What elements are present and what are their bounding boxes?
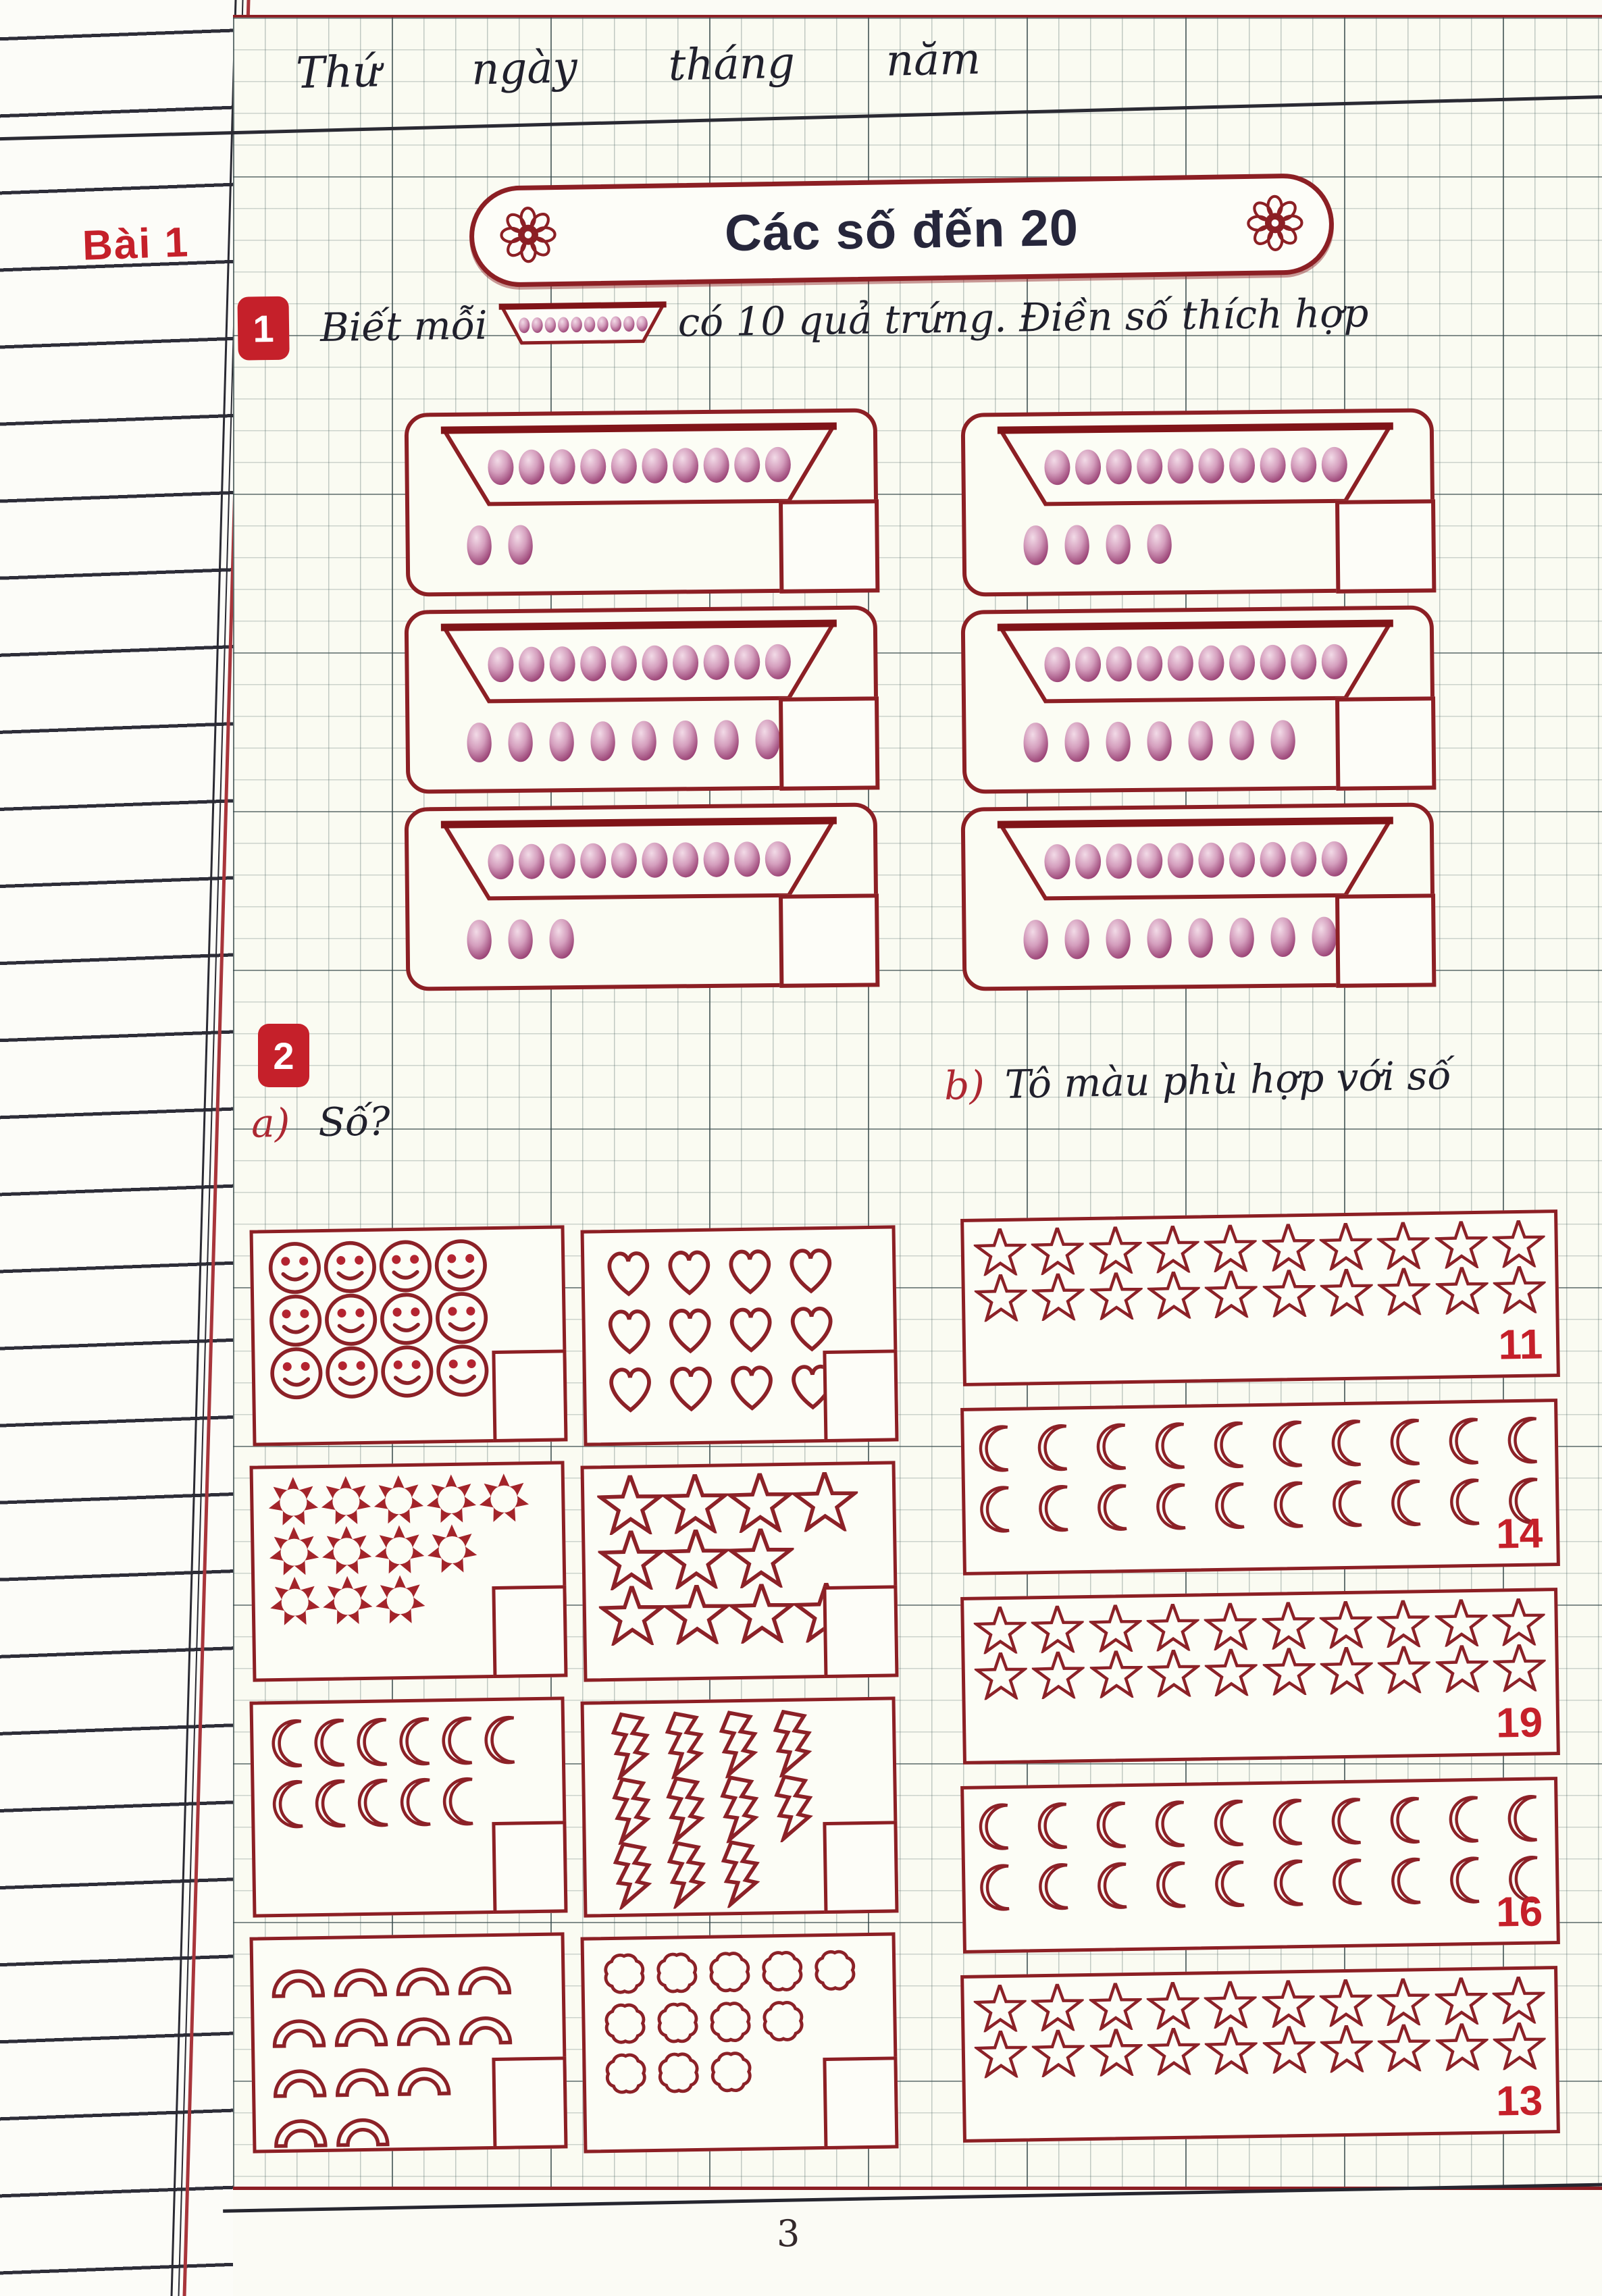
- date-word-ngay: ngày: [471, 43, 577, 95]
- star-shape[interactable]: [973, 1228, 1027, 1276]
- sun-shape: [424, 1472, 479, 1527]
- shape-row: [598, 1992, 894, 2051]
- star-shape[interactable]: [1435, 1221, 1488, 1269]
- exercise2-badge: 2: [258, 1024, 309, 1087]
- moon-shape[interactable]: [1033, 1477, 1077, 1540]
- cloud-shape: [808, 1943, 862, 1998]
- lightning-shape: [652, 1775, 708, 1844]
- egg-shape: [503, 917, 538, 962]
- lesson-tab: Bài 1: [82, 218, 190, 269]
- star-shape[interactable]: [1435, 1977, 1488, 2025]
- part-a-letter: a): [251, 1100, 290, 1147]
- star-shape[interactable]: [1032, 2029, 1085, 2077]
- loose-eggs: [1018, 521, 1177, 567]
- workbook-page: Thứ ngày tháng năm Bài 1 Các số đ: [0, 0, 1602, 2296]
- shape-row: [973, 1409, 1545, 1480]
- date-word-thang: tháng: [668, 38, 796, 91]
- moon-shape[interactable]: [1327, 1850, 1370, 1913]
- part-a-title: Số?: [318, 1098, 390, 1145]
- sun-shape: [267, 1575, 322, 1629]
- target-number: 14: [1496, 1509, 1543, 1558]
- star-shape[interactable]: [1262, 1648, 1316, 1696]
- lightning-shape: [759, 1708, 816, 1777]
- star-shape: [598, 1530, 665, 1591]
- egg-shape: [1142, 521, 1177, 567]
- rainbow-shape: [267, 1996, 331, 2051]
- star-shape[interactable]: [1262, 2026, 1316, 2074]
- moon-shape: [394, 1708, 438, 1774]
- egg-count-box: [961, 802, 1436, 991]
- rainbow-shape: [330, 2095, 394, 2149]
- target-number: 13: [1496, 2077, 1543, 2125]
- rainbow-shape: [390, 1944, 455, 1999]
- page-title: Các số đến 20: [559, 196, 1244, 265]
- answer-box[interactable]: [1335, 893, 1436, 988]
- moon-shape[interactable]: [975, 1856, 1018, 1919]
- egg-tray: [440, 815, 839, 904]
- moon-shape[interactable]: [1091, 1794, 1134, 1856]
- flower-icon: [1243, 191, 1307, 257]
- shape-row: [598, 1471, 893, 1535]
- shape-row: [974, 2022, 1546, 2078]
- cloud-shape: [702, 1945, 757, 2000]
- shape-row: [267, 1942, 562, 2001]
- moon-shape[interactable]: [1092, 1854, 1135, 1917]
- answer-box[interactable]: [823, 1349, 898, 1442]
- star-shape[interactable]: [974, 2030, 1027, 2078]
- cloud-shape: [651, 2045, 706, 2100]
- count-boxes-grid: [251, 1228, 898, 2151]
- target-number: 16: [1496, 1887, 1543, 1936]
- heart-shape: [658, 1296, 721, 1359]
- moon-shape[interactable]: [973, 1417, 1016, 1480]
- smiley-shape: [266, 1239, 324, 1297]
- moon-shape: [309, 1771, 354, 1836]
- moon-shape[interactable]: [1386, 1471, 1429, 1534]
- lightning-shape: [705, 1708, 762, 1778]
- answer-box[interactable]: [823, 2056, 898, 2149]
- star-shape[interactable]: [1319, 1979, 1372, 2027]
- moon-shape[interactable]: [1443, 1788, 1487, 1851]
- answer-box[interactable]: [1335, 499, 1436, 594]
- star-shape[interactable]: [1320, 2025, 1373, 2072]
- egg-shape: [1018, 720, 1053, 765]
- moon-shape[interactable]: [1149, 1793, 1193, 1856]
- moon-shape[interactable]: [1326, 1790, 1369, 1852]
- star-shape: [792, 1471, 858, 1532]
- moon-shape[interactable]: [1386, 1850, 1429, 1912]
- moon-shape: [437, 1769, 482, 1834]
- star-shape[interactable]: [1435, 2023, 1489, 2071]
- star-shape: [598, 1586, 665, 1646]
- rainbow-shape: [392, 2044, 456, 2099]
- moon-shape[interactable]: [975, 1478, 1018, 1541]
- star-shape[interactable]: [1435, 1599, 1488, 1647]
- moon-shape[interactable]: [1033, 1855, 1077, 1918]
- star-shape[interactable]: [1089, 1983, 1142, 2031]
- heart-shape: [658, 1238, 721, 1301]
- answer-box[interactable]: [492, 1349, 567, 1442]
- star-shape[interactable]: [1147, 2027, 1200, 2075]
- heart-shape: [779, 1236, 842, 1299]
- loose-eggs: [462, 523, 538, 568]
- target-number: 19: [1496, 1698, 1543, 1747]
- sun-shape: [477, 1471, 532, 1526]
- egg-shape: [668, 718, 702, 763]
- moon-shape[interactable]: [1445, 1471, 1488, 1534]
- egg-shape: [1224, 915, 1259, 960]
- egg-count-box: [405, 605, 879, 793]
- count-box-star: [581, 1461, 899, 1681]
- answer-box[interactable]: [492, 1821, 567, 1914]
- answer-box[interactable]: [823, 1585, 898, 1678]
- shape-row: [974, 1266, 1546, 1322]
- star-shape[interactable]: [1378, 1646, 1431, 1694]
- answer-box[interactable]: [779, 696, 879, 791]
- rainbow-shape: [391, 1994, 455, 2049]
- sun-shape: [267, 1525, 321, 1580]
- answer-box[interactable]: [492, 1585, 567, 1678]
- egg-shape: [462, 720, 496, 765]
- shape-row: [267, 1521, 563, 1580]
- star-shape[interactable]: [1493, 2022, 1546, 2070]
- shape-row: [267, 1471, 562, 1530]
- star-shape[interactable]: [1146, 1225, 1199, 1273]
- moon-shape[interactable]: [1149, 1415, 1193, 1478]
- part-a-label: a) Số?: [251, 1098, 390, 1147]
- cloud-shape: [703, 1995, 758, 2050]
- star-shape[interactable]: [1204, 1981, 1258, 2029]
- count-box-rainbow: [250, 1932, 568, 2153]
- color-box-moon: 16: [960, 1777, 1560, 1954]
- shape-row: [975, 1848, 1547, 1919]
- shape-row: [598, 1235, 893, 1302]
- star-shape[interactable]: [1031, 1227, 1085, 1275]
- moon-shape[interactable]: [1032, 1794, 1075, 1857]
- moon-shape[interactable]: [1151, 1476, 1194, 1538]
- moon-shape[interactable]: [1032, 1416, 1075, 1479]
- heart-shape: [659, 1354, 722, 1417]
- smiley-shape: [267, 1345, 325, 1402]
- shape-row: [974, 1644, 1546, 1700]
- egg-count-box: [961, 408, 1436, 596]
- smiley-shape: [378, 1342, 436, 1400]
- egg-count-box: [405, 802, 879, 991]
- date-word-thu: Thứ: [295, 47, 381, 99]
- heart-shape: [719, 1295, 782, 1358]
- moon-shape[interactable]: [1385, 1411, 1428, 1473]
- star-shape: [663, 1584, 730, 1645]
- cloud-shape: [650, 1995, 705, 2050]
- star-shape[interactable]: [1319, 1600, 1372, 1648]
- moon-shape[interactable]: [1502, 1787, 1545, 1850]
- star-shape[interactable]: [1205, 1270, 1258, 1318]
- moon-shape[interactable]: [1502, 1409, 1545, 1471]
- egg-shape: [709, 717, 744, 762]
- sun-shape: [320, 1574, 375, 1629]
- loose-eggs: [1018, 914, 1341, 962]
- moon-shape[interactable]: [1445, 1849, 1488, 1912]
- moon-shape[interactable]: [1327, 1472, 1370, 1535]
- moon-shape[interactable]: [1267, 1413, 1310, 1476]
- smiley-shape: [433, 1289, 490, 1347]
- cloud-shape: [704, 2045, 758, 2099]
- rainbow-shape: [266, 1946, 330, 2001]
- star-shape[interactable]: [1089, 2029, 1143, 2077]
- loose-eggs: [462, 916, 579, 962]
- star-shape[interactable]: [1320, 1268, 1373, 1316]
- star-shape[interactable]: [1492, 1976, 1545, 2024]
- egg-shape: [586, 719, 620, 764]
- heart-shape: [780, 1295, 843, 1357]
- moon-shape[interactable]: [1210, 1474, 1253, 1537]
- moon-shape[interactable]: [1091, 1415, 1134, 1478]
- color-box-moon: 14: [960, 1399, 1560, 1575]
- sun-shape: [371, 1473, 426, 1528]
- loose-eggs: [462, 716, 826, 765]
- sun-shape: [319, 1524, 374, 1579]
- smiley-shape: [432, 1236, 490, 1294]
- part-b-title: Tô màu phù hợp với số: [1004, 1052, 1451, 1107]
- egg-shape: [1018, 917, 1053, 962]
- star-shape[interactable]: [1493, 1644, 1546, 1692]
- smiley-shape: [377, 1237, 434, 1295]
- flower-icon: [496, 203, 560, 269]
- heart-shape: [720, 1353, 783, 1416]
- answer-box[interactable]: [779, 499, 879, 594]
- star-shape[interactable]: [1262, 1224, 1315, 1272]
- star-shape[interactable]: [1262, 1270, 1316, 1317]
- star-shape[interactable]: [1031, 1983, 1085, 2031]
- color-boxes-column: 1114191613: [962, 1214, 1559, 2138]
- cloud-shape: [597, 1946, 652, 2001]
- sun-shape: [373, 1573, 428, 1628]
- star-shape[interactable]: [1493, 1266, 1546, 1313]
- smiley-shape: [323, 1344, 380, 1401]
- star-shape[interactable]: [1147, 1649, 1200, 1697]
- egg-tray: [996, 815, 1395, 904]
- star-shape[interactable]: [1378, 1268, 1431, 1315]
- page-number: 3: [777, 2212, 800, 2255]
- moon-shape[interactable]: [1092, 1476, 1135, 1539]
- sun-shape: [425, 1522, 480, 1577]
- egg-count-box: [405, 408, 879, 596]
- shape-row: [267, 1992, 563, 2051]
- star-shape[interactable]: [1032, 1651, 1085, 1699]
- cloud-shape: [755, 1943, 810, 1998]
- moon-shape[interactable]: [1267, 1791, 1310, 1854]
- egg-shape: [1060, 523, 1094, 568]
- star-shape[interactable]: [1377, 1600, 1430, 1648]
- moon-shape: [479, 1707, 523, 1773]
- star-shape[interactable]: [1204, 1602, 1258, 1650]
- egg-shape: [1101, 719, 1135, 764]
- cloud-shape: [598, 2046, 653, 2101]
- lightning-shape: [599, 1840, 656, 1910]
- egg-shape: [1060, 917, 1094, 962]
- egg-shape: [544, 719, 579, 764]
- star-shape[interactable]: [1435, 1267, 1489, 1315]
- heart-shape: [598, 1297, 661, 1360]
- star-shape[interactable]: [1492, 1220, 1545, 1268]
- egg-tray-icon: [498, 301, 667, 347]
- color-box-star: 11: [960, 1209, 1560, 1386]
- egg-shape: [462, 523, 496, 568]
- star-shape[interactable]: [973, 1984, 1027, 2032]
- lightning-shape: [597, 1711, 654, 1780]
- star-shape[interactable]: [1089, 1650, 1143, 1698]
- prompt-after: có 10 quả trứng. Điền số thích hợp: [677, 290, 1369, 345]
- smiley-shape: [322, 1291, 380, 1349]
- egg-shape: [1142, 719, 1177, 764]
- color-box-star: 19: [960, 1588, 1560, 1765]
- star-shape[interactable]: [1146, 1981, 1199, 2029]
- answer-box[interactable]: [779, 893, 879, 988]
- lightning-shape: [653, 1840, 710, 1909]
- answer-box[interactable]: [823, 1821, 898, 1914]
- smiley-shape: [267, 1292, 324, 1349]
- shape-row: [598, 1942, 893, 2001]
- moon-shape: [351, 1709, 396, 1775]
- egg-shape: [503, 720, 538, 765]
- star-shape: [728, 1584, 795, 1644]
- moon-shape[interactable]: [1208, 1413, 1251, 1476]
- star-shape[interactable]: [1204, 1224, 1258, 1272]
- smiley-shape: [321, 1238, 379, 1296]
- star-shape[interactable]: [973, 1606, 1027, 1654]
- star-shape: [727, 1528, 794, 1589]
- answer-box[interactable]: [1335, 696, 1436, 791]
- heart-shape: [719, 1237, 781, 1300]
- lightning-shape: [707, 1838, 764, 1908]
- star-shape: [597, 1475, 664, 1536]
- moon-shape[interactable]: [1385, 1789, 1428, 1852]
- cloud-shape: [756, 1993, 810, 2048]
- loose-eggs: [1018, 717, 1300, 764]
- egg-shape: [544, 916, 579, 962]
- sun-shape: [266, 1475, 321, 1530]
- egg-shape: [1266, 914, 1300, 960]
- moon-shape[interactable]: [1151, 1854, 1194, 1916]
- star-shape[interactable]: [1378, 2024, 1431, 2072]
- moon-shape[interactable]: [1210, 1852, 1253, 1915]
- star-shape[interactable]: [1205, 1648, 1258, 1696]
- star-shape[interactable]: [1435, 1645, 1489, 1693]
- moon-shape: [267, 1771, 311, 1837]
- rainbow-shape: [453, 1943, 517, 1998]
- egg-tray: [996, 618, 1395, 707]
- egg-shape: [1142, 916, 1177, 961]
- egg-shape: [1101, 522, 1135, 567]
- moon-shape[interactable]: [1326, 1411, 1369, 1474]
- cloud-shape: [650, 1946, 704, 2000]
- star-shape[interactable]: [1262, 1980, 1315, 2028]
- moon-shape: [266, 1711, 311, 1776]
- egg-shape: [1224, 718, 1259, 763]
- moon-shape: [352, 1770, 396, 1835]
- moon-shape[interactable]: [1443, 1410, 1487, 1473]
- egg-tray: [440, 618, 839, 707]
- prompt-before: Biết mỗi: [320, 303, 488, 350]
- count-box-heart: [581, 1225, 899, 1446]
- star-shape[interactable]: [1319, 1222, 1372, 1270]
- moon-shape[interactable]: [1208, 1792, 1251, 1854]
- shape-row: [598, 1706, 894, 1780]
- star-shape[interactable]: [1147, 1271, 1200, 1319]
- egg-shape: [1183, 916, 1218, 961]
- date-word-nam: năm: [885, 34, 981, 86]
- heart-shape: [598, 1355, 661, 1418]
- rainbow-shape: [329, 1995, 393, 2050]
- star-shape: [662, 1473, 729, 1534]
- count-box-cloud: [581, 1932, 899, 2153]
- star-shape[interactable]: [1320, 1646, 1373, 1694]
- rainbow-shape: [453, 1993, 517, 2047]
- rainbow-shape: [328, 1945, 392, 2000]
- star-shape[interactable]: [1032, 1273, 1085, 1321]
- moon-shape: [436, 1708, 481, 1773]
- star-shape[interactable]: [1031, 1605, 1085, 1653]
- shape-row: [975, 1469, 1547, 1540]
- smiley-shape: [434, 1342, 491, 1399]
- star-shape[interactable]: [1146, 1603, 1199, 1651]
- egg-tray: [440, 421, 839, 510]
- egg-shape: [1266, 717, 1300, 762]
- star-shape: [727, 1473, 794, 1534]
- lightning-shape: [651, 1710, 708, 1779]
- shape-row: [598, 1526, 894, 1590]
- egg-shape: [1018, 523, 1053, 568]
- moon-shape: [309, 1710, 353, 1775]
- answer-box[interactable]: [492, 2056, 567, 2149]
- star-shape: [663, 1529, 729, 1590]
- shape-row: [267, 1235, 562, 1297]
- egg-shape: [1101, 916, 1135, 962]
- egg-tray-icon: [498, 301, 667, 347]
- sun-shape: [372, 1523, 427, 1578]
- count-box-moon: [250, 1696, 568, 1917]
- star-shape[interactable]: [974, 1652, 1027, 1700]
- shape-row: [267, 1288, 563, 1349]
- lightning-shape: [760, 1773, 817, 1842]
- exercise1-badge: 1: [237, 296, 289, 361]
- moon-shape[interactable]: [1268, 1473, 1312, 1536]
- star-shape[interactable]: [1089, 1226, 1142, 1274]
- star-shape[interactable]: [1262, 1602, 1315, 1650]
- moon-shape[interactable]: [973, 1796, 1016, 1858]
- star-shape[interactable]: [974, 1274, 1027, 1322]
- star-shape[interactable]: [1089, 1604, 1142, 1652]
- star-shape[interactable]: [1377, 1222, 1430, 1270]
- count-box-smiley: [250, 1225, 568, 1446]
- star-shape[interactable]: [1089, 1272, 1143, 1320]
- egg-shape: [462, 917, 496, 962]
- moon-shape[interactable]: [1268, 1852, 1312, 1914]
- shape-row: [267, 1706, 562, 1776]
- rainbow-shape: [268, 2096, 332, 2151]
- star-shape[interactable]: [1492, 1598, 1545, 1646]
- star-shape[interactable]: [1377, 1978, 1430, 2026]
- target-number: 11: [1498, 1320, 1543, 1369]
- shape-row: [973, 1787, 1545, 1858]
- part-b-letter: b): [944, 1062, 985, 1109]
- star-shape[interactable]: [1205, 2027, 1258, 2075]
- cloud-shape: [598, 1996, 652, 2051]
- rainbow-shape: [330, 2045, 394, 2099]
- smiley-shape: [378, 1290, 435, 1347]
- lightning-shape: [706, 1773, 763, 1843]
- sun-shape: [319, 1474, 373, 1529]
